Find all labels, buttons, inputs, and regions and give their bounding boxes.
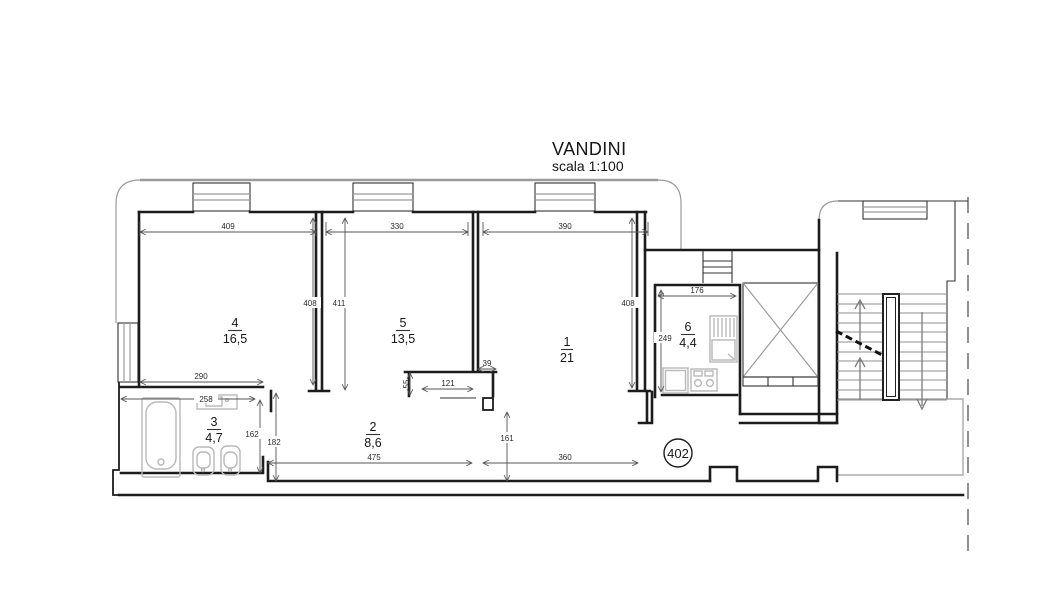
dim-label: 408 (303, 299, 317, 308)
svg-text:5: 5 (400, 316, 407, 330)
plan-scale: scala 1:100 (552, 158, 624, 174)
title-block: VANDINI scala 1:100 (552, 139, 626, 174)
dim-label: 360 (558, 453, 572, 462)
window-room1-icon (535, 183, 595, 211)
svg-text:8,6: 8,6 (364, 436, 381, 450)
dim-label: 55 (402, 379, 411, 388)
dim-label: 121 (441, 379, 455, 388)
kitchen-sink-icon (710, 316, 737, 362)
svg-text:6: 6 (685, 320, 692, 334)
building-boundary (113, 180, 968, 556)
bathroom-fixtures (142, 395, 240, 477)
dim-label: 390 (558, 222, 572, 231)
apartment-walls (120, 212, 837, 481)
svg-text:2: 2 (370, 420, 377, 434)
toilet-icon (193, 447, 214, 475)
bidet-icon (221, 446, 240, 475)
svg-text:4: 4 (232, 316, 239, 330)
window-room5-icon (353, 183, 413, 211)
svg-text:4,4: 4,4 (679, 336, 696, 350)
svg-text:4,7: 4,7 (205, 431, 222, 445)
svg-text:1: 1 (564, 335, 571, 349)
room-label-3: 3 4,7 (205, 415, 222, 445)
window-landing-icon (863, 201, 927, 219)
fridge-icon (663, 368, 688, 393)
room-label-2: 2 8,6 (364, 420, 381, 450)
svg-text:3: 3 (211, 415, 218, 429)
window-room4-icon (193, 183, 250, 211)
svg-text:16,5: 16,5 (223, 332, 247, 346)
kitchen-fixtures (663, 316, 737, 393)
dim-label: 258 (199, 395, 213, 404)
unit-number: 402 (667, 446, 689, 461)
plan-title: VANDINI (552, 139, 626, 159)
dim-label: 475 (367, 453, 381, 462)
dim-label: 162 (245, 430, 259, 439)
entrance-door-icon (703, 251, 732, 283)
staircase (836, 294, 947, 409)
room-label-5: 5 13,5 (391, 316, 415, 346)
dim-label: 161 (500, 434, 514, 443)
window-left-wall-icon (118, 323, 138, 382)
dim-label: 408 (621, 299, 635, 308)
floor-plan-drawing: 409 330 390 408 411 408 176 249 290 258 … (0, 0, 1047, 602)
dim-label: 411 (333, 299, 346, 308)
room-label-1: 1 21 (560, 335, 574, 365)
dim-label: 182 (267, 438, 281, 447)
dim-label: 330 (390, 222, 404, 231)
dim-label: 290 (194, 372, 208, 381)
dimension-labels: 409 330 390 408 411 408 176 249 290 258 … (194, 222, 704, 462)
dim-label: 249 (658, 334, 672, 343)
room-label-4: 4 16,5 (223, 316, 247, 346)
stair-stringer (883, 294, 899, 400)
dim-label: 39 (483, 359, 492, 368)
stove-icon (691, 369, 717, 391)
elevator-x-icon (743, 283, 818, 377)
elevator-shaft (743, 283, 818, 386)
bathtub-icon (142, 398, 180, 477)
svg-text:13,5: 13,5 (391, 332, 415, 346)
floor-plan-canvas: 409 330 390 408 411 408 176 249 290 258 … (0, 0, 1047, 602)
dim-label: 176 (690, 286, 704, 295)
svg-text:21: 21 (560, 351, 574, 365)
room-label-6: 6 4,4 (679, 320, 696, 350)
unit-number-badge: 402 (664, 439, 692, 467)
dim-label: 409 (221, 222, 235, 231)
stair-up-arrow-icon (855, 300, 865, 400)
